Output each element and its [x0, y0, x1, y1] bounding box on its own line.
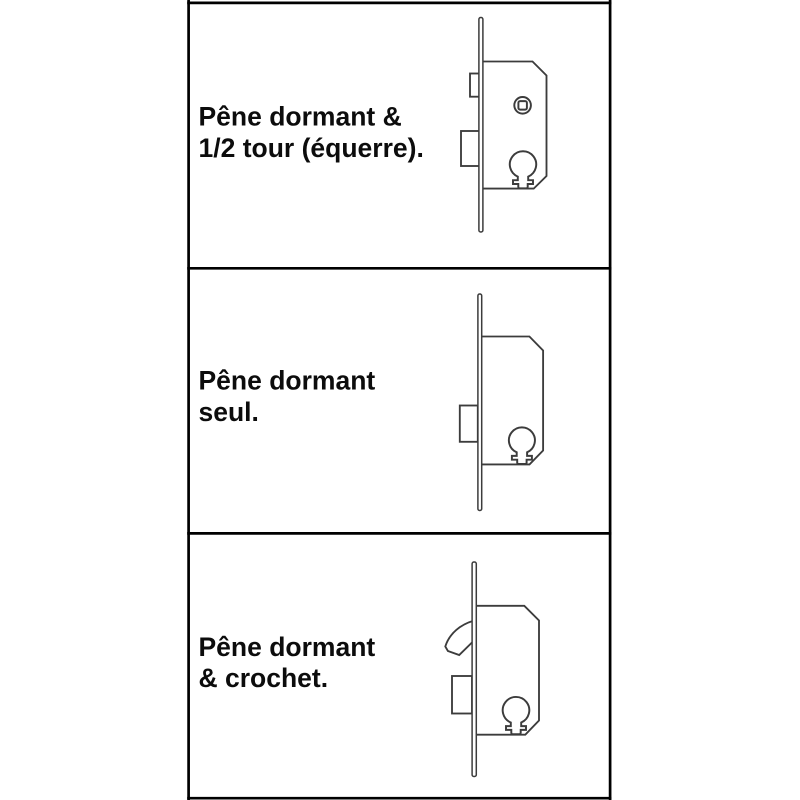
svg-text:Pêne dormant: Pêne dormant	[199, 366, 376, 396]
svg-text:Pêne dormant &: Pêne dormant &	[199, 102, 402, 132]
svg-text:seul.: seul.	[199, 397, 259, 427]
svg-text:Pêne dormant: Pêne dormant	[199, 632, 376, 662]
svg-text:1/2 tour (équerre).: 1/2 tour (équerre).	[199, 133, 424, 163]
svg-text:& crochet.: & crochet.	[199, 663, 329, 693]
